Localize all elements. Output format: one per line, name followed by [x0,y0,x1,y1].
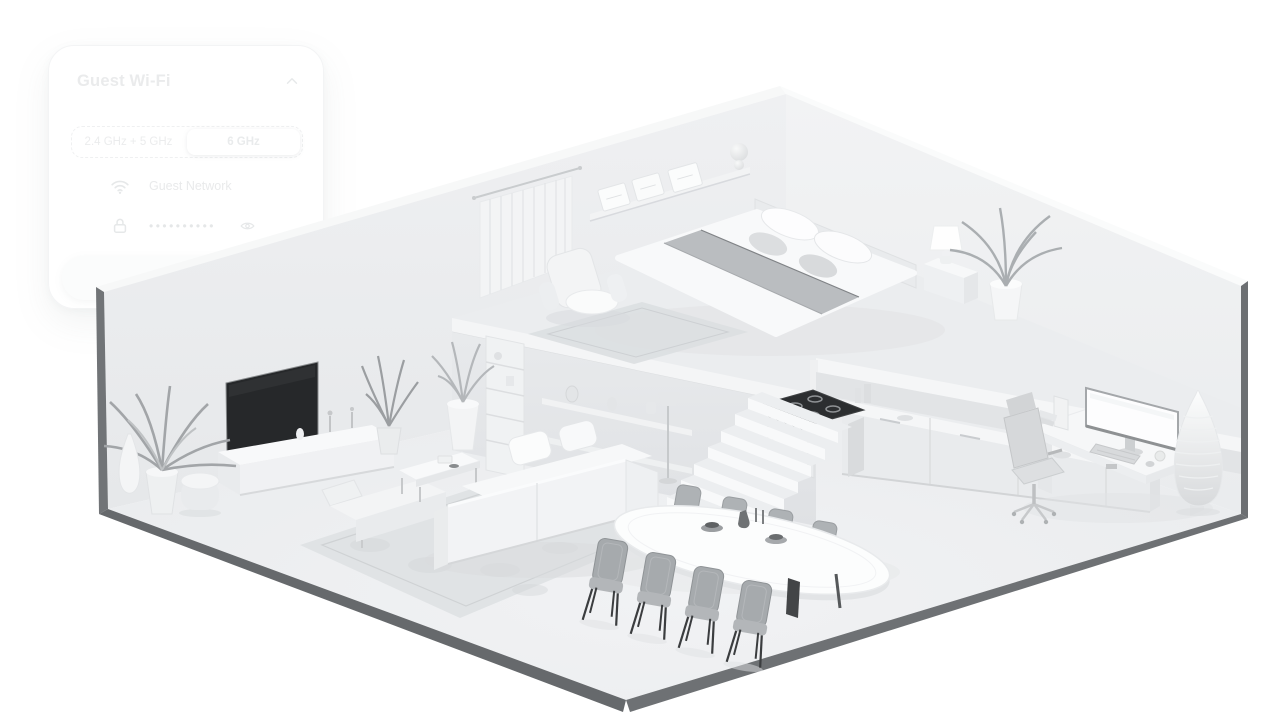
kitchen-counter [842,400,1150,474]
floor-lamp [658,392,680,484]
under-loft-shelves [486,336,692,484]
eye-icon[interactable] [238,218,257,234]
office-chair [1004,392,1064,524]
lock-icon [107,214,133,238]
plant-white-pot [432,342,494,450]
band-option-6ghz[interactable]: 6 GHz [187,129,300,155]
pouf [179,473,221,517]
mouse [1146,461,1155,467]
living-room [104,342,665,618]
desk [1030,406,1210,516]
card-header: Guest Wi-Fi [49,46,323,92]
monitor-screen [1086,388,1178,450]
wall-shelf [590,167,750,221]
share-button[interactable]: Share [62,256,306,300]
bed-blanket [664,230,859,314]
password-masked: •••••••••• [149,219,216,233]
home-office [1004,388,1222,524]
under-loft-wall [452,332,816,526]
loft-rug [528,302,748,364]
keyboard [1090,444,1140,464]
bedroom [472,143,1062,364]
band-option-dual[interactable]: 2.4 GHz + 5 GHz [72,127,185,157]
table-lamp [930,226,962,264]
right-wall [786,94,1241,514]
armchair [537,245,630,327]
chaise-lounge [322,480,446,548]
dining-chairs-back [665,484,839,586]
dining-table-top [608,488,897,612]
wifi-icon [107,174,133,198]
network-row: Guest Network [107,174,232,198]
floor [108,352,1241,700]
monitor [1086,388,1178,456]
network-name: Guest Network [149,179,232,193]
palm-plant [104,386,236,514]
coffee-table [398,452,480,502]
floor-vase-small [119,434,140,493]
staircase [654,392,852,571]
table-setting [701,508,787,544]
tv-screen [226,362,318,455]
stove-cooktop [763,390,864,424]
bed [618,199,916,334]
bedroom-loft-platform [452,221,1241,526]
loft-plant [950,208,1062,320]
screenshot-root: Guest Wi-Fi 2.4 GHz + 5 GHz 6 GHz Guest … [0,0,1280,720]
plant-dark [362,356,418,454]
bookcase [486,336,524,478]
pc-tower [1054,396,1068,430]
living-rug [300,478,665,618]
tv-stand [218,407,394,495]
sofa [425,419,658,578]
password-row: •••••••••• [107,214,257,238]
shelf-boxes [598,162,703,211]
dining-chairs-front [579,537,778,675]
nightstand [924,258,978,304]
floor-vase-large [1174,390,1222,516]
sphere-decor [730,143,748,161]
card-title: Guest Wi-Fi [77,72,171,91]
curtain [480,176,572,298]
chevron-up-icon[interactable] [281,70,303,92]
band-selector[interactable]: 2.4 GHz + 5 GHz 6 GHz [71,126,303,158]
kitchen [763,372,1241,512]
guest-wifi-card: Guest Wi-Fi 2.4 GHz + 5 GHz 6 GHz Guest … [48,45,324,309]
stove [763,390,864,478]
dining-area [579,484,900,675]
